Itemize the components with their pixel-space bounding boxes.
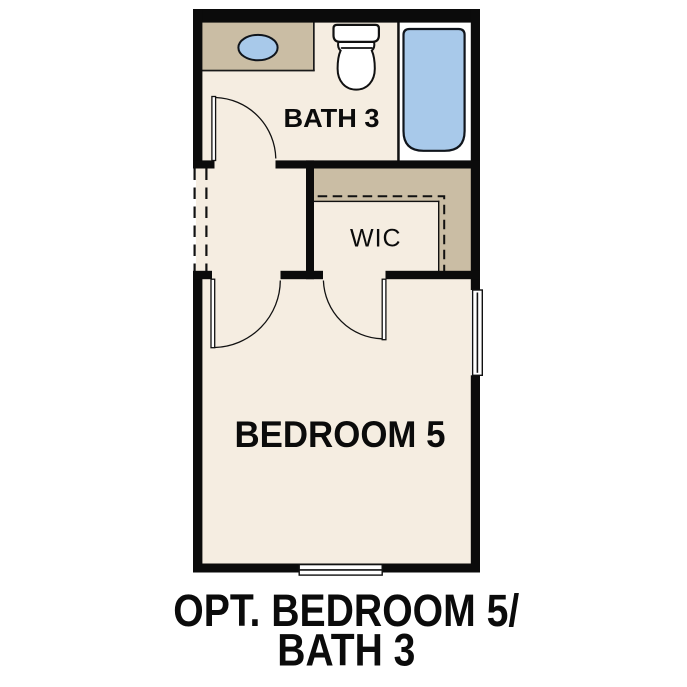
svg-text:BEDROOM 5: BEDROOM 5 <box>235 414 446 455</box>
svg-text:BATH 3: BATH 3 <box>284 105 380 133</box>
svg-text:WIC: WIC <box>350 225 402 253</box>
svg-text:BATH 3: BATH 3 <box>277 625 415 676</box>
